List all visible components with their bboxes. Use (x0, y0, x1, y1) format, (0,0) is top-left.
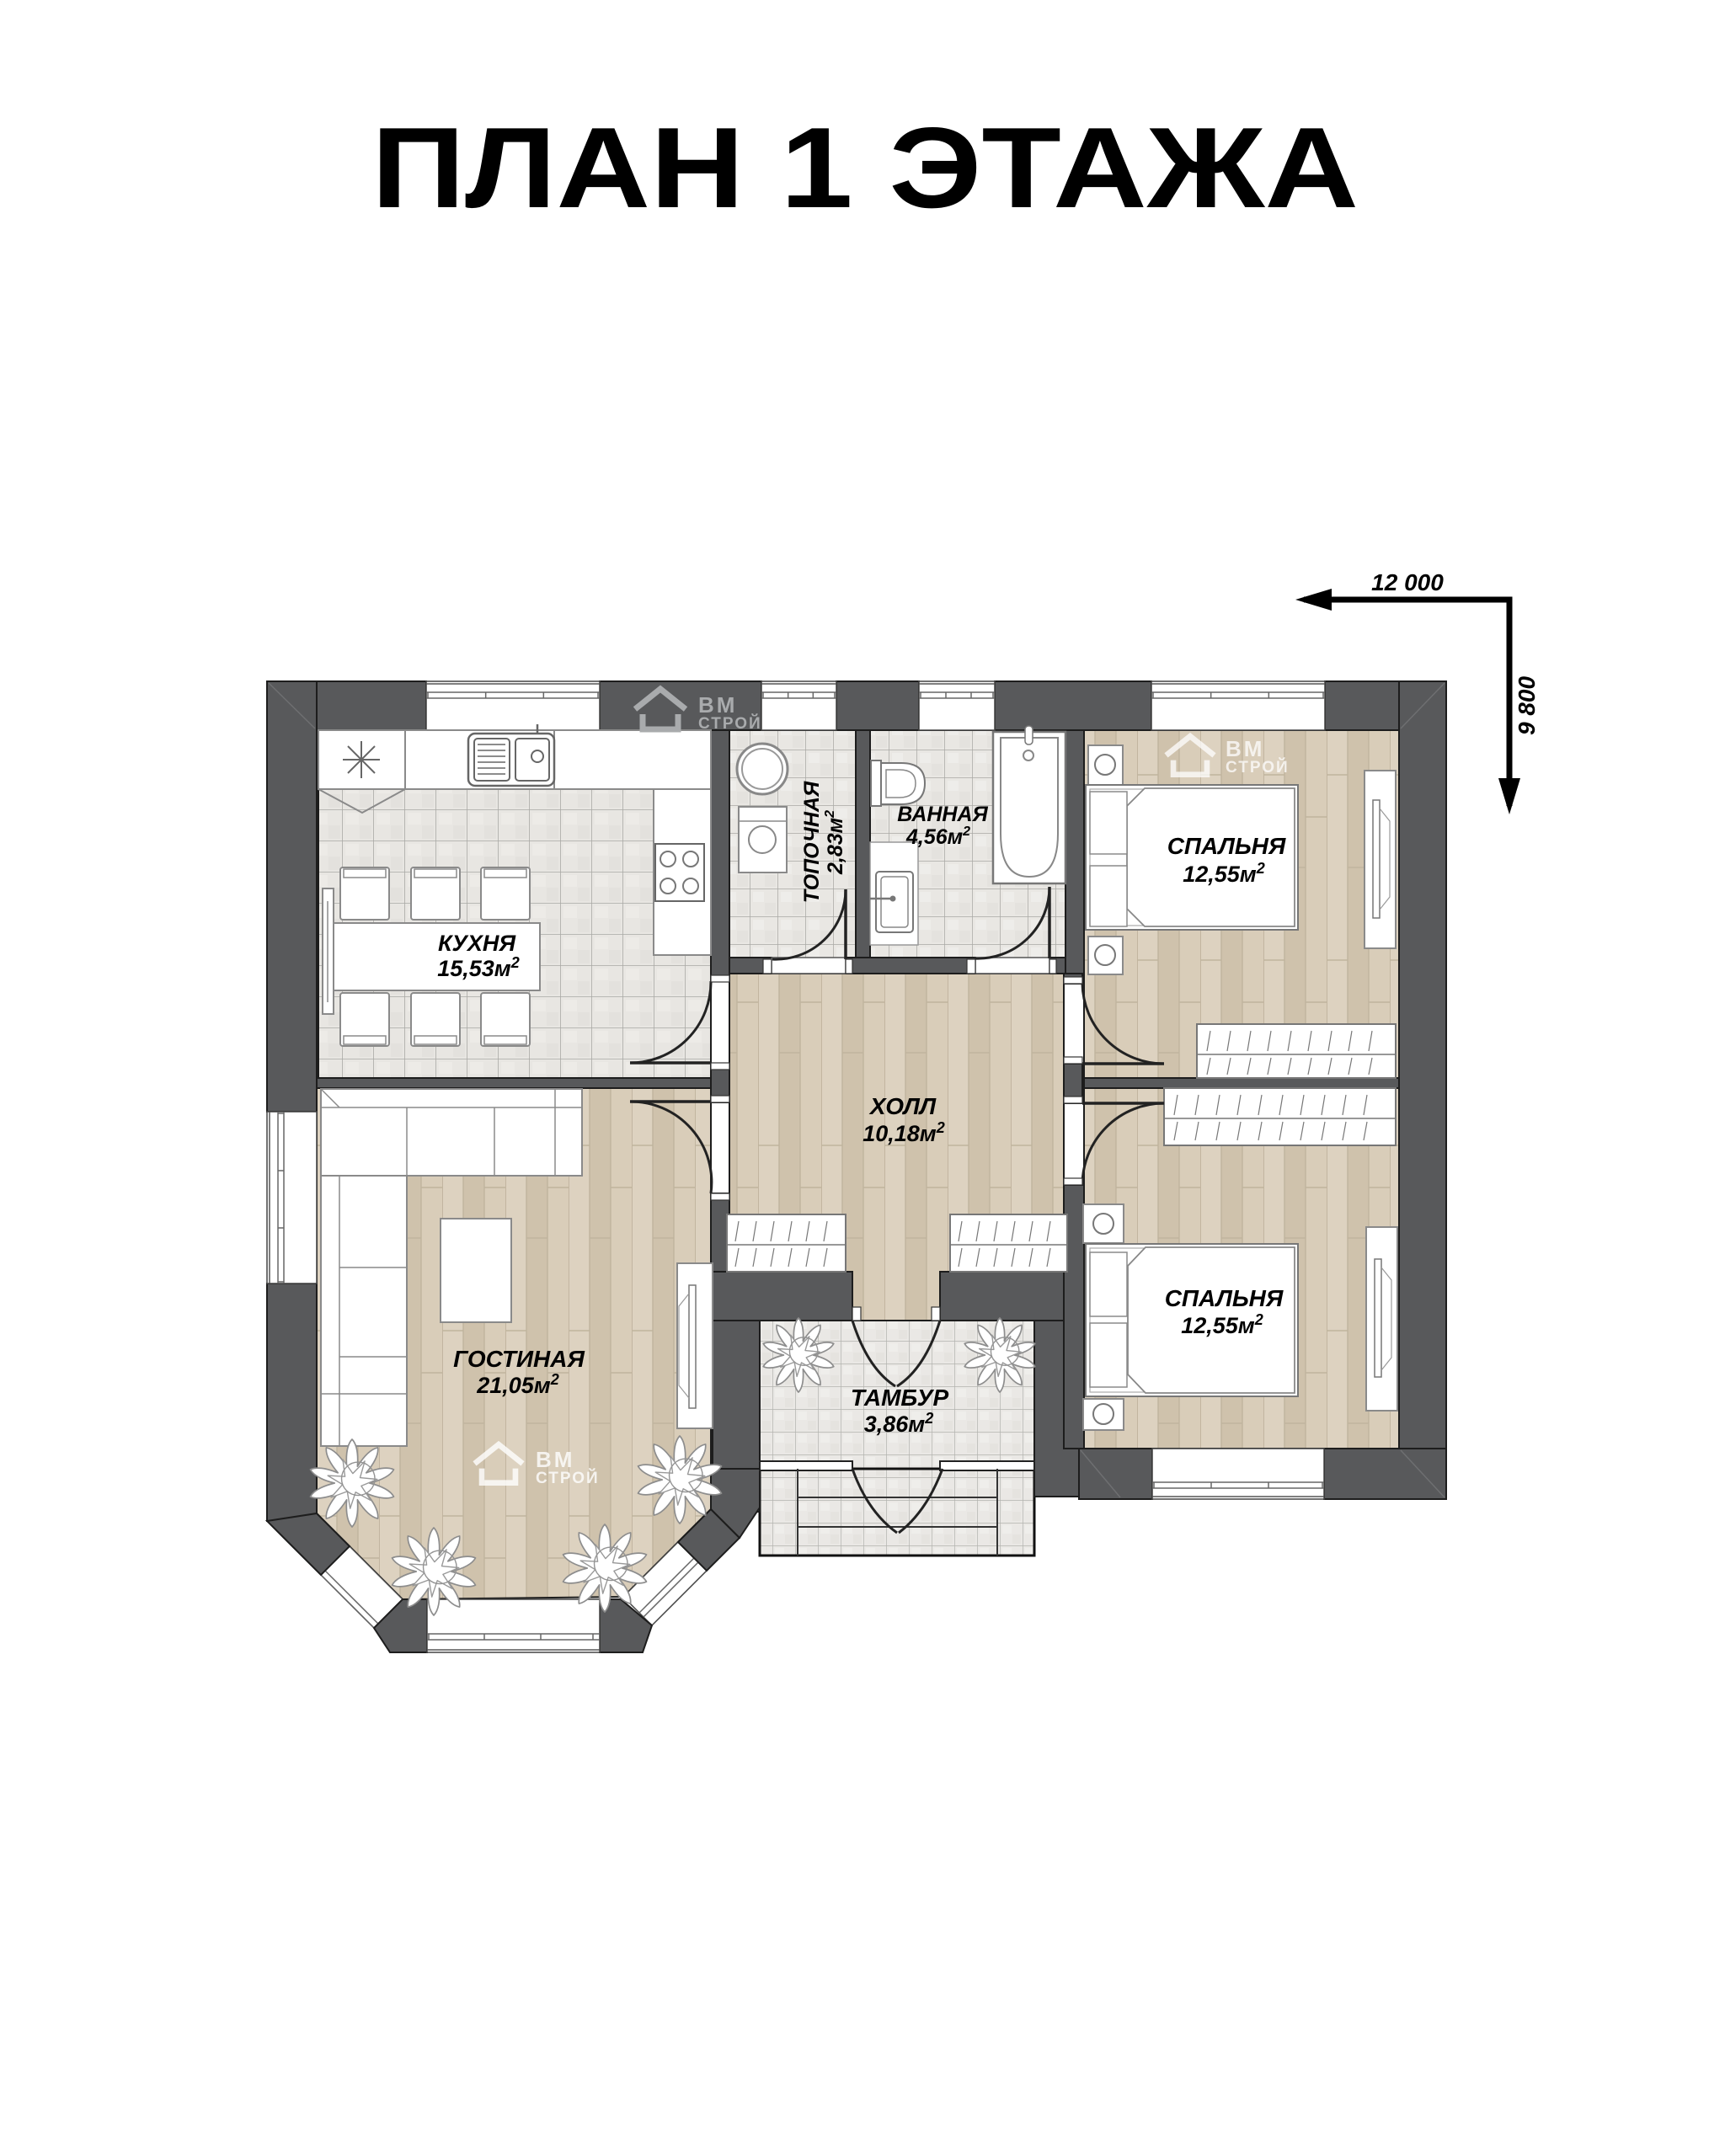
svg-text:2,83м2: 2,83м2 (823, 810, 847, 875)
svg-text:9 800: 9 800 (1514, 676, 1540, 735)
svg-text:12 000: 12 000 (1371, 569, 1444, 595)
svg-text:СТРОЙ: СТРОЙ (536, 1469, 600, 1487)
svg-text:12,55м2: 12,55м2 (1183, 860, 1265, 887)
svg-text:ВМ: ВМ (1226, 736, 1264, 761)
svg-text:СПАЛЬНЯ: СПАЛЬНЯ (1167, 833, 1286, 859)
svg-text:ГОСТИНАЯ: ГОСТИНАЯ (453, 1346, 585, 1372)
svg-text:ПЛАН 1 ЭТАЖА: ПЛАН 1 ЭТАЖА (371, 104, 1359, 232)
svg-text:10,18м2: 10,18м2 (862, 1119, 945, 1146)
svg-text:ВМ: ВМ (698, 692, 737, 718)
svg-text:ВМ: ВМ (536, 1447, 574, 1472)
svg-text:ВАННАЯ: ВАННАЯ (897, 803, 988, 826)
svg-text:12,55м2: 12,55м2 (1181, 1311, 1263, 1338)
svg-text:4,56м2: 4,56м2 (905, 825, 970, 849)
svg-text:15,53м2: 15,53м2 (437, 954, 520, 981)
svg-text:21,05м2: 21,05м2 (476, 1371, 559, 1398)
svg-text:ТОПОЧНАЯ: ТОПОЧНАЯ (800, 781, 824, 903)
svg-text:3,86м2: 3,86м2 (864, 1410, 934, 1437)
svg-text:ТАМБУР: ТАМБУР (851, 1385, 949, 1411)
svg-text:КУХНЯ: КУХНЯ (438, 931, 516, 956)
svg-text:ХОЛЛ: ХОЛЛ (868, 1093, 937, 1119)
svg-text:СТРОЙ: СТРОЙ (698, 714, 762, 733)
svg-text:СПАЛЬНЯ: СПАЛЬНЯ (1165, 1285, 1284, 1311)
svg-text:СТРОЙ: СТРОЙ (1226, 758, 1290, 776)
